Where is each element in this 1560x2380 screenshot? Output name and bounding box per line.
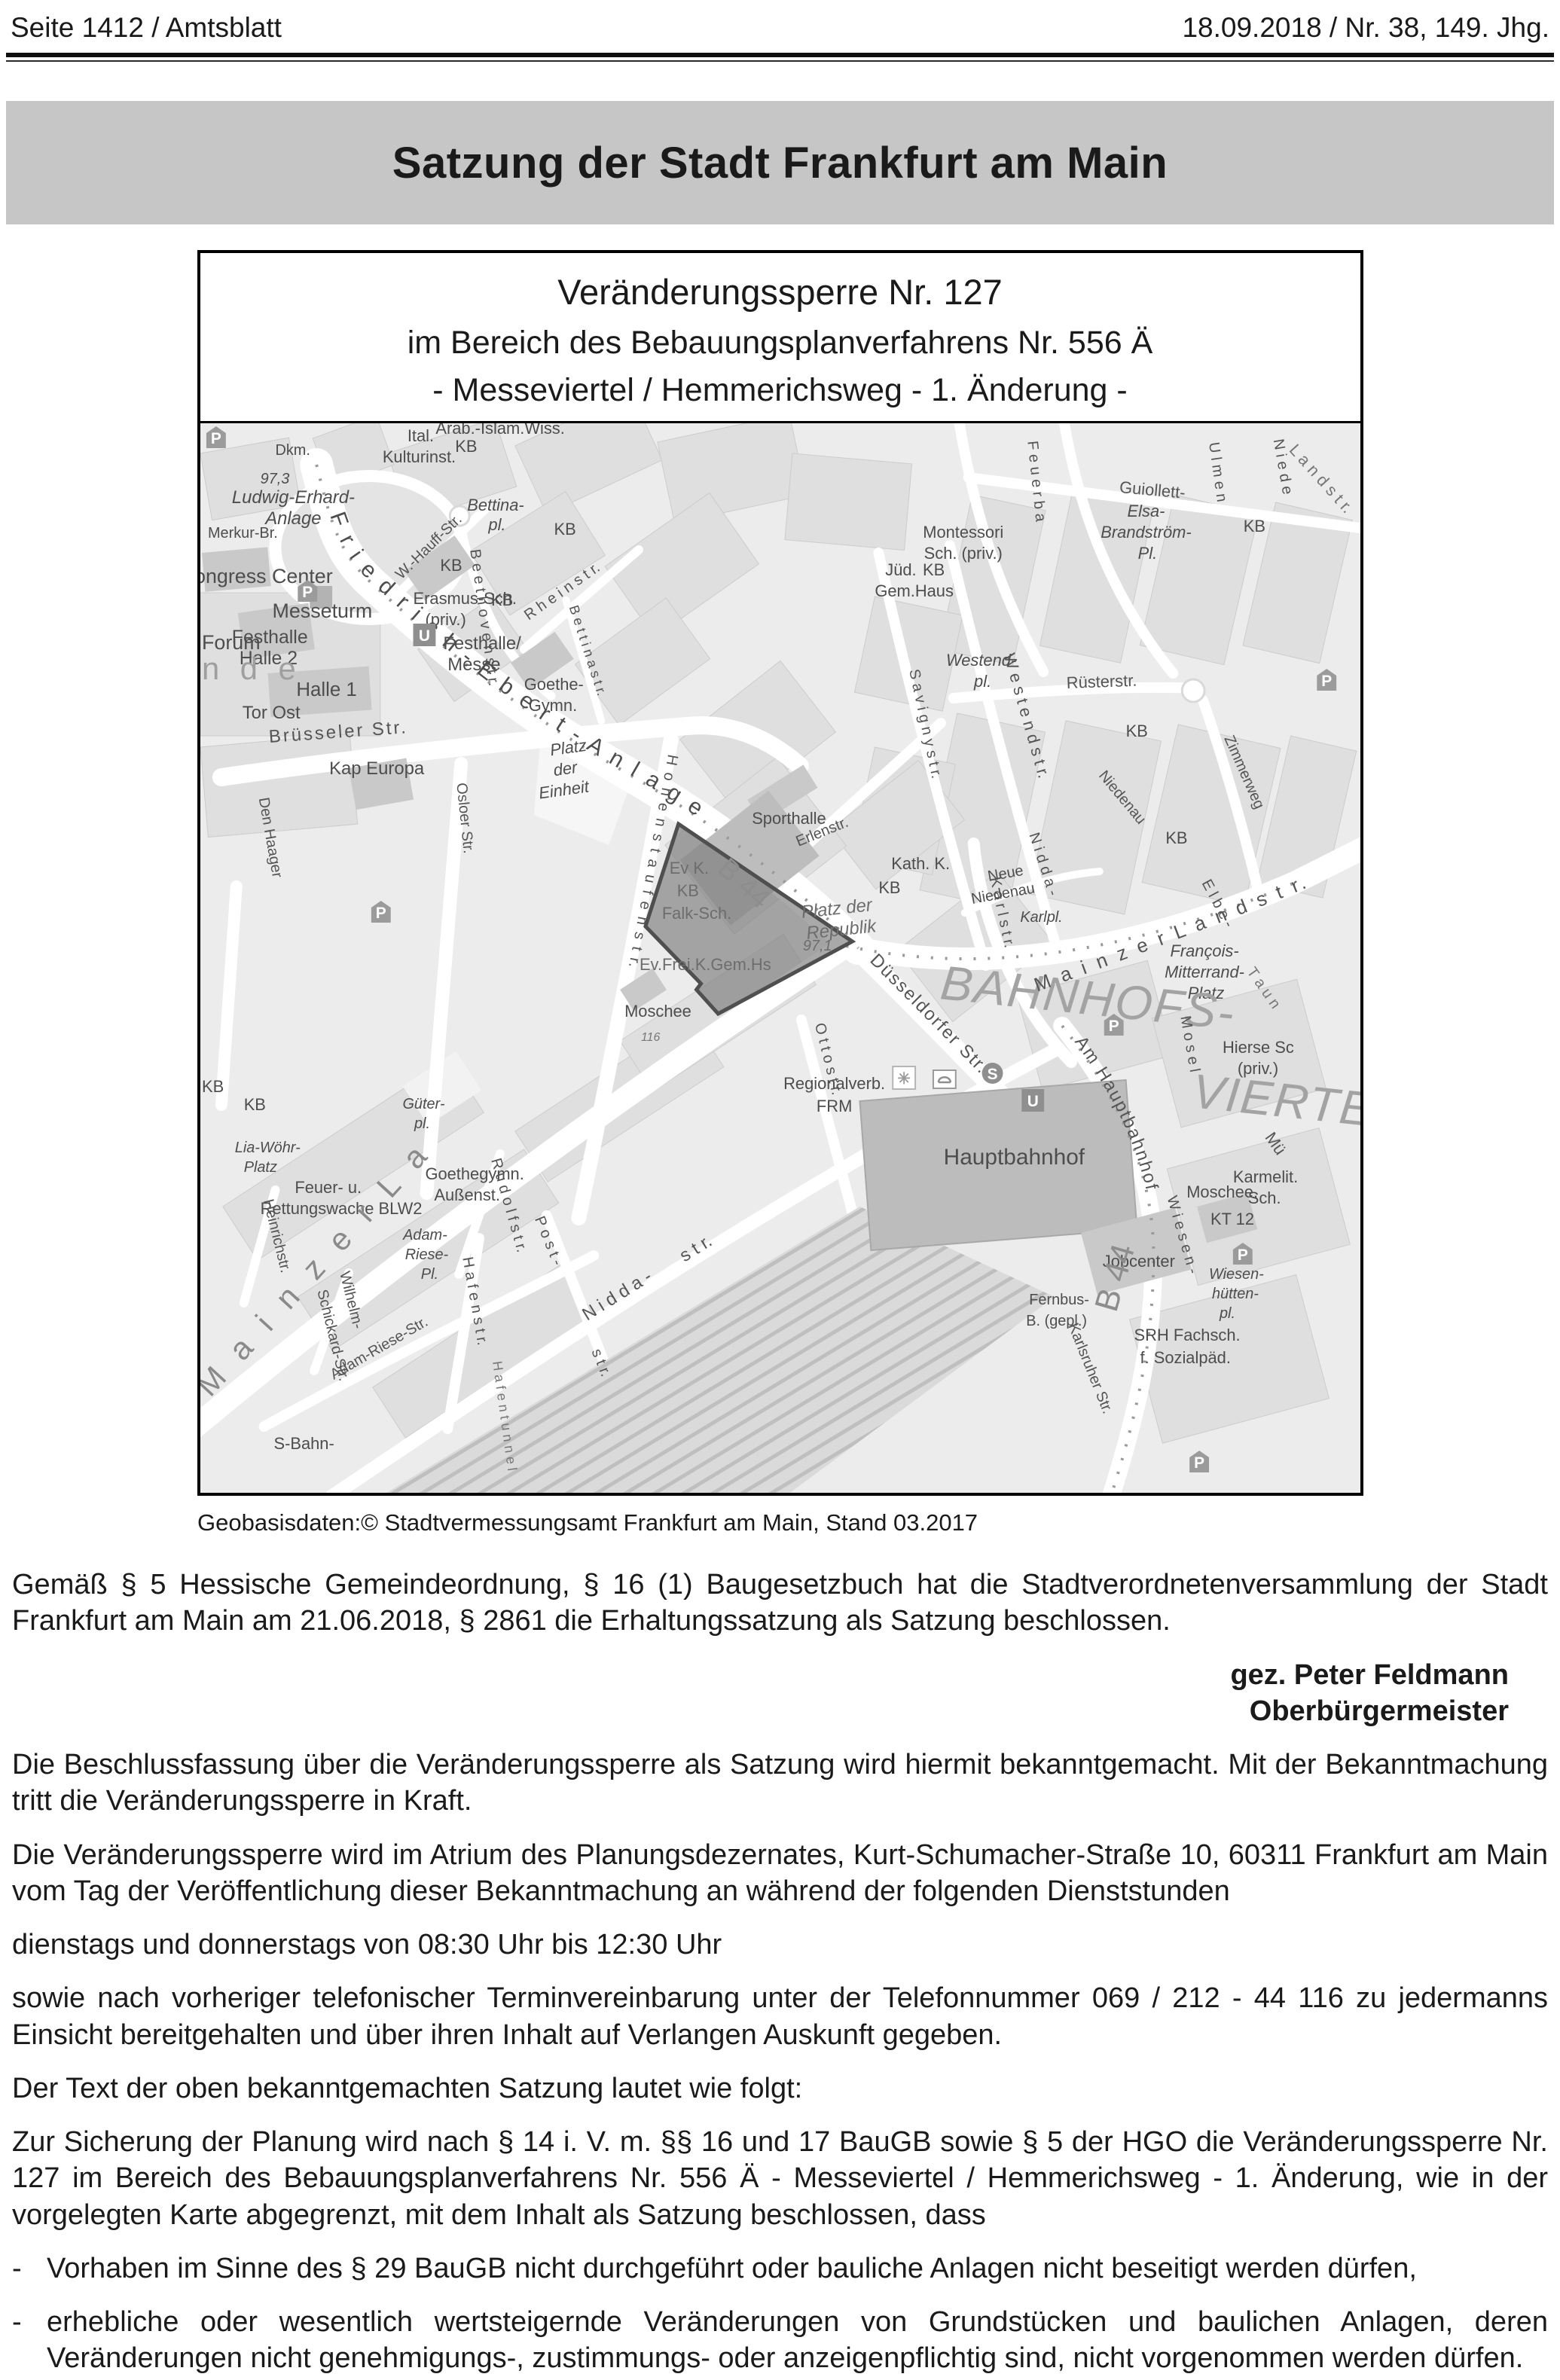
map-label: Ital. [407,426,433,445]
notice-title-line3: - Messeviertel / Hemmerichsweg - 1. Ände… [208,372,1353,409]
map-label: Tor Ost [242,703,300,723]
map-label: pl. [1218,1305,1235,1322]
map-label: KB [1165,828,1187,847]
map-label: Adam- [402,1227,447,1243]
paragraph-beschluss: Gemäß § 5 Hessische Gemeindeordnung, § 1… [12,1567,1548,1640]
svg-text:P: P [375,905,386,922]
bullet-item-1: - Vorhaben im Sinne des § 29 BauGB nicht… [12,2250,1548,2287]
map-label: Messeturm [272,600,372,622]
map-label: Jüd. [885,560,916,579]
map-label: KB [1125,722,1147,740]
svg-text:S: S [987,1066,997,1083]
bullet-text-1: Vorhaben im Sinne des § 29 BauGB nicht d… [47,2250,1548,2287]
map-label: Gem.Haus [875,581,954,600]
map-label: Feuer- u. [295,1178,362,1197]
map-label: KB [676,881,698,900]
city-map-svg: Dkm.97,3Ludwig-Erhard-AnlageMerkur-Br.on… [200,423,1360,1493]
bullet-item-2: - erhebliche oder wesentlich wertsteiger… [12,2304,1548,2377]
map-label: KB [440,556,462,575]
map-label: der [552,758,579,780]
map-U-icon: U [413,624,435,646]
signature-name: gez. Peter Feldmann [12,1657,1509,1693]
map-label: Sporthalle [752,809,826,828]
map-label: Wiesen- [1209,1266,1264,1283]
issue-date: 18.09.2018 / Nr. 38, 149. Jhg. [1182,12,1549,44]
document-title: Satzung der Stadt Frankfurt am Main [392,138,1168,188]
body-text: Gemäß § 5 Hessische Gemeindeordnung, § 1… [12,1567,1548,2377]
map-label: Halle 1 [296,679,356,700]
map-label: Montessori [923,523,1003,542]
map-label: Arab.-Islam.Wiss. [435,423,564,438]
page-number: Seite 1412 / Amtsblatt [11,12,282,44]
map-label: Außenst. [434,1185,500,1204]
svg-text:U: U [1027,1093,1038,1110]
map-label: Moschee [624,1002,691,1021]
map-label: Ev K. [669,859,708,877]
map-label: KB [201,1077,223,1096]
map-label: Karlpl. [1020,909,1062,926]
map-label: S-Bahn- [273,1434,334,1453]
map-label: (priv.) [1237,1059,1278,1078]
map-label: Festhalle [231,627,307,648]
map-label: Kap Europa [329,758,425,779]
paragraph-termin: sowie nach vorheriger telefonischer Term… [12,1980,1548,2053]
notice-titles: Veränderungssperre Nr. 127 im Bereich de… [200,253,1360,421]
map-label: Dkm. [275,442,310,459]
paragraph-bekanntmachung: Die Beschlussfassung über die Veränderun… [12,1747,1548,1820]
map-label: Brandström- [1101,523,1191,542]
map-sun-icon: ✳ [893,1066,915,1089]
page-header: Seite 1412 / Amtsblatt 18.09.2018 / Nr. … [0,0,1560,44]
map-label: Lia-Wöhr- [234,1140,300,1156]
bullet-dash: - [12,2304,47,2377]
map-S-icon: S [981,1063,1003,1084]
map-label: Pl. [1137,544,1157,563]
map-label: pl. [973,672,991,691]
map-label: 116 [640,1031,659,1044]
notice-title-line1: Veränderungssperre Nr. 127 [208,271,1353,313]
svg-text:P: P [1321,673,1332,690]
map-label: KB [923,560,945,579]
map-label: Elsa- [1127,502,1165,520]
map-label: Ev.Frei.K.Gem.Hs [639,955,771,974]
map-label: f. Sozialpäd. [1140,1348,1230,1367]
map-label: pl. [487,515,505,534]
map-label: SRH Fachsch. [1134,1326,1240,1344]
svg-text:P: P [1194,1454,1204,1472]
map-label: Mitterrand- [1165,963,1244,981]
map-label: 97,3 [260,471,289,487]
map-label: KB [455,437,477,456]
map-U-icon: U [1021,1089,1044,1112]
map-label: 97,1 [802,938,832,954]
map-label: Falk-Sch. [661,904,731,923]
map-label: Hierse Sc [1222,1038,1293,1057]
notice-title-line2: im Bereich des Bebauungsplanverfahrens N… [208,325,1353,362]
svg-text:P: P [302,584,313,601]
header-rule [6,53,1554,62]
map-label: Hauptbahnhof [943,1145,1085,1170]
map-label: Ludwig-Erhard- [231,487,354,508]
bullet-text-2: erhebliche oder wesentlich wertsteigernd… [47,2304,1548,2377]
map-label: Pl. [420,1266,438,1283]
map-label: Moschee. [1186,1182,1258,1201]
paragraph-satzungstext-intro: Der Text der oben bekanntgemachten Satzu… [12,2070,1548,2107]
map-label: Fernbus- [1029,1292,1089,1308]
map-label: Bettina- [467,496,524,514]
paragraph-sicherung: Zur Sicherung der Planung wird nach § 14… [12,2124,1548,2233]
map-label: KB [878,878,900,897]
notice-box: Veränderungssperre Nr. 127 im Bereich de… [197,250,1363,1496]
map-label: François- [1170,941,1238,960]
map-label: KB [554,520,575,539]
paragraph-dienststunden: dienstags und donnerstags von 08:30 Uhr … [12,1927,1548,1963]
map-label: KB [490,590,512,609]
map-post-icon [933,1070,955,1088]
map-label: Riese- [405,1246,448,1263]
bullet-dash: - [12,2250,47,2287]
map-caption: Geobasisdaten:© Stadtvermessungsamt Fran… [197,1509,1560,1536]
map-label: Rüsterstr. [1066,671,1137,692]
map-label: Güter- [402,1096,444,1112]
svg-text:✳: ✳ [897,1070,911,1088]
paragraph-einsicht: Die Veränderungssperre wird im Atrium de… [12,1837,1548,1910]
map-label: KB [1243,517,1265,535]
map-label: FRM [816,1097,851,1115]
map-label: Kulturinst. [382,447,455,466]
map-label: Merkur-Br. [207,525,277,542]
map-label: n d e [201,651,301,686]
map-label: KB [243,1095,265,1114]
svg-text:P: P [1108,1018,1119,1035]
city-map: Dkm.97,3Ludwig-Erhard-AnlageMerkur-Br.on… [200,421,1360,1493]
map-label: Kath. K. [891,854,950,873]
map-label: hütten- [1212,1286,1259,1302]
signature-title: Oberbürgermeister [12,1693,1509,1729]
signature-block: gez. Peter Feldmann Oberbürgermeister [12,1657,1548,1730]
map-label: KT 12 [1210,1210,1254,1228]
map-label: Platz [243,1159,276,1176]
svg-text:P: P [210,430,221,447]
svg-text:U: U [418,627,429,645]
title-banner: Satzung der Stadt Frankfurt am Main [6,101,1554,224]
svg-text:P: P [1237,1246,1247,1264]
